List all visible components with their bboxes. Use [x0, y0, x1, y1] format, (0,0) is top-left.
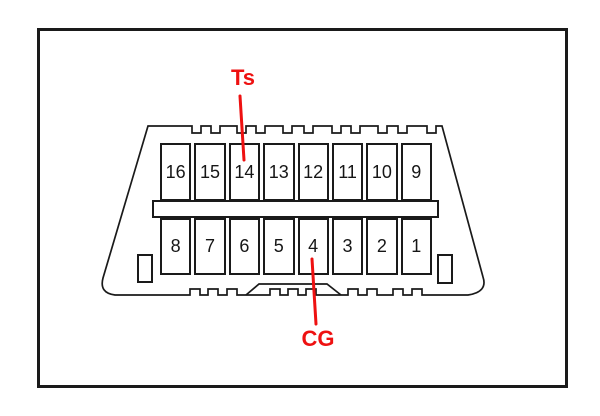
- pin-cell-5: 5: [263, 218, 294, 275]
- pin-cell-11: 11: [332, 143, 363, 201]
- pin-cell-3: 3: [332, 218, 363, 275]
- cg-label: CG: [298, 328, 338, 350]
- pin-cell-15: 15: [194, 143, 225, 201]
- ts-label: Ts: [225, 67, 261, 89]
- pin-row-bottom: 8 7 6 5 4 3 2 1: [160, 218, 432, 275]
- pin-cell-4: 4: [298, 218, 329, 275]
- pin-cell-9: 9: [401, 143, 432, 201]
- pinout-diagram: 16 15 14 13 12 11 10 9 8 7 6 5 4 3 2 1 T…: [0, 0, 600, 416]
- pin-cell-1: 1: [401, 218, 432, 275]
- connector-center-bar: [152, 200, 439, 218]
- pin-cell-13: 13: [263, 143, 294, 201]
- pin-cell-6: 6: [229, 218, 260, 275]
- pin-cell-14: 14: [229, 143, 260, 201]
- pin-row-top: 16 15 14 13 12 11 10 9: [160, 143, 432, 201]
- pin-cell-7: 7: [194, 218, 225, 275]
- pin-cell-8: 8: [160, 218, 191, 275]
- mounting-slot-right: [437, 254, 453, 284]
- pin-cell-10: 10: [366, 143, 397, 201]
- pin-cell-2: 2: [366, 218, 397, 275]
- mounting-slot-left: [137, 254, 153, 283]
- pin-cell-12: 12: [298, 143, 329, 201]
- pin-cell-16: 16: [160, 143, 191, 201]
